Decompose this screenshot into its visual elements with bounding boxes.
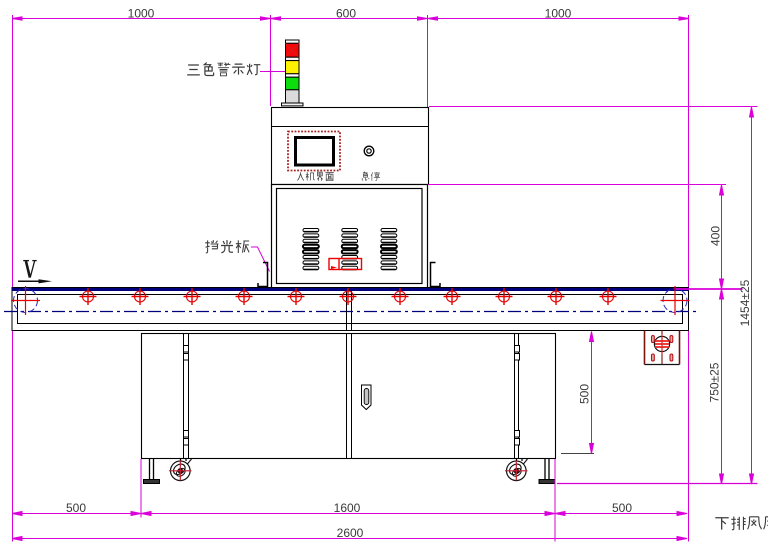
- svg-text:750±25: 750±25: [708, 362, 722, 402]
- svg-text:1000: 1000: [545, 7, 572, 21]
- svg-text:400: 400: [709, 226, 723, 246]
- svg-text:500: 500: [66, 501, 86, 515]
- svg-text:600: 600: [336, 7, 356, 21]
- svg-text:1600: 1600: [334, 501, 361, 515]
- svg-text:1000: 1000: [128, 7, 155, 21]
- svg-text:1454±25: 1454±25: [738, 279, 752, 326]
- svg-text:500: 500: [612, 501, 632, 515]
- svg-text:500: 500: [578, 384, 592, 404]
- svg-text:2600: 2600: [337, 526, 364, 540]
